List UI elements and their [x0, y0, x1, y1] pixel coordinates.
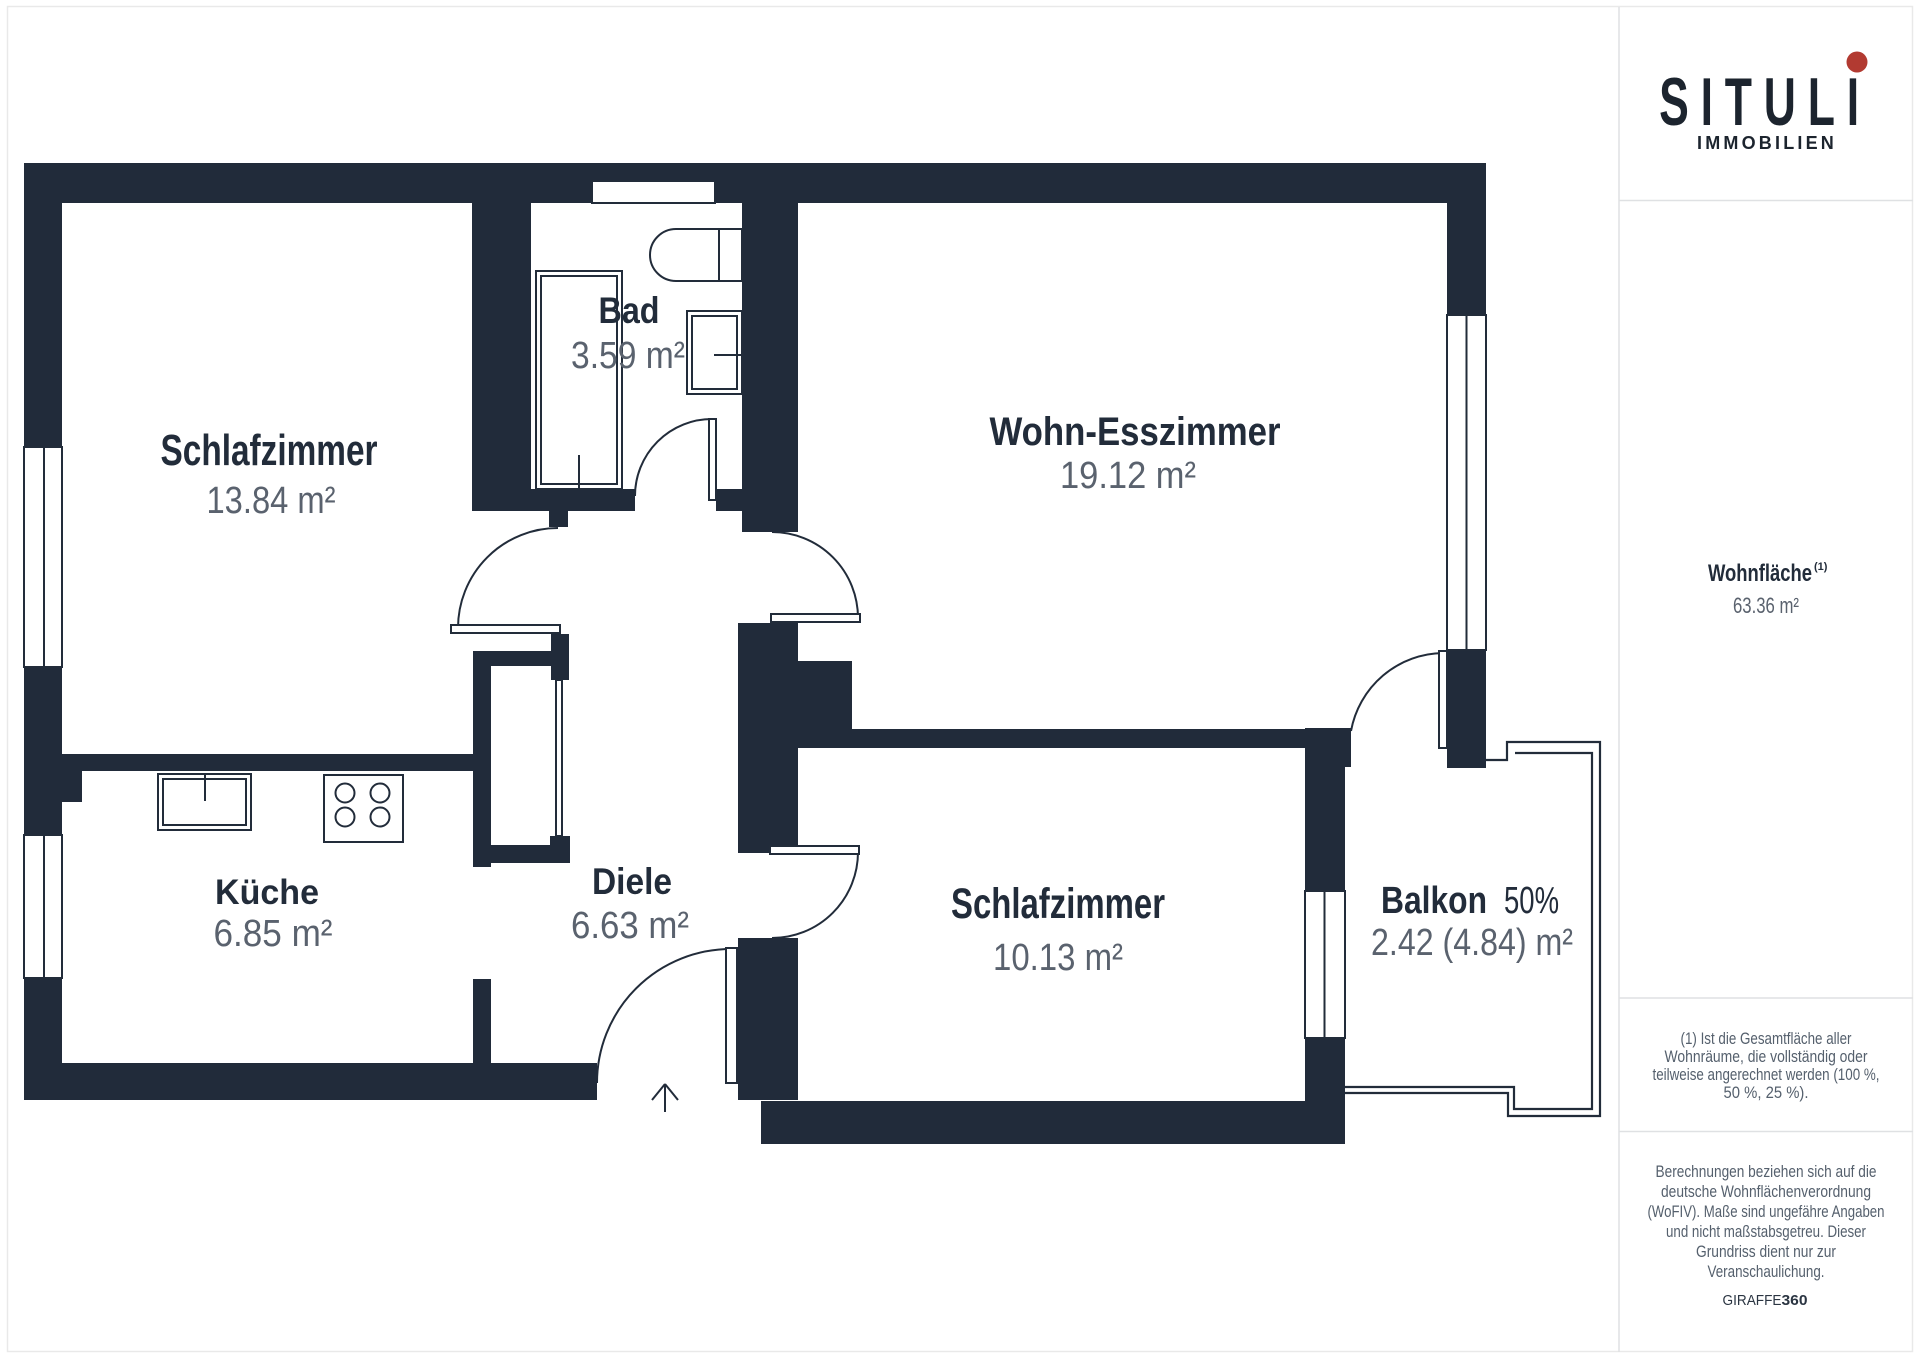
svg-text:6.63 m²: 6.63 m² [571, 905, 689, 947]
svg-text:Veranschaulichung.: Veranschaulichung. [1708, 1263, 1825, 1281]
svg-text:Bad: Bad [599, 290, 660, 331]
svg-text:Schlafzimmer: Schlafzimmer [161, 426, 378, 475]
svg-text:(1): (1) [1814, 561, 1828, 573]
svg-text:GIRAFFE360: GIRAFFE360 [1723, 1292, 1808, 1309]
svg-text:SITULI: SITULI [1659, 65, 1871, 141]
svg-text:und nicht maßstabsgetreu. Dies: und nicht maßstabsgetreu. Dieser [1666, 1223, 1866, 1241]
svg-text:Wohnfläche: Wohnfläche [1708, 560, 1812, 587]
svg-text:Berechnungen beziehen sich auf: Berechnungen beziehen sich auf die [1656, 1163, 1877, 1181]
svg-text:Diele: Diele [592, 861, 672, 902]
svg-text:IMMOBILIEN: IMMOBILIEN [1697, 133, 1837, 153]
svg-text:(1) Ist die Gesamtfläche aller: (1) Ist die Gesamtfläche aller [1681, 1030, 1852, 1048]
svg-text:Wohn-Esszimmer: Wohn-Esszimmer [990, 410, 1281, 454]
svg-text:Balkon50%: Balkon50% [1381, 880, 1559, 922]
svg-text:13.84 m²: 13.84 m² [207, 480, 336, 522]
svg-text:50 %, 25 %).: 50 %, 25 %). [1724, 1084, 1809, 1102]
svg-text:Grundriss dient nur zur: Grundriss dient nur zur [1696, 1243, 1836, 1261]
svg-text:63.36 m²: 63.36 m² [1733, 593, 1799, 618]
svg-text:2.42 (4.84) m²: 2.42 (4.84) m² [1371, 922, 1573, 964]
svg-text:Schlafzimmer: Schlafzimmer [951, 880, 1165, 928]
svg-text:19.12 m²: 19.12 m² [1060, 455, 1196, 497]
svg-text:Wohnräume, die vollständig ode: Wohnräume, die vollständig oder [1665, 1048, 1868, 1066]
svg-text:deutsche Wohnflächenverordnung: deutsche Wohnflächenverordnung [1661, 1183, 1871, 1201]
svg-text:teilweise angerechnet werden (: teilweise angerechnet werden (100 %, [1653, 1066, 1880, 1084]
svg-text:3.59 m²: 3.59 m² [571, 335, 685, 377]
svg-text:Küche: Küche [215, 873, 319, 912]
svg-text:6.85 m²: 6.85 m² [214, 913, 333, 955]
svg-text:10.13 m²: 10.13 m² [993, 937, 1123, 979]
svg-text:(WoFIV). Maße sind ungefähre A: (WoFIV). Maße sind ungefähre Angaben [1648, 1203, 1885, 1221]
